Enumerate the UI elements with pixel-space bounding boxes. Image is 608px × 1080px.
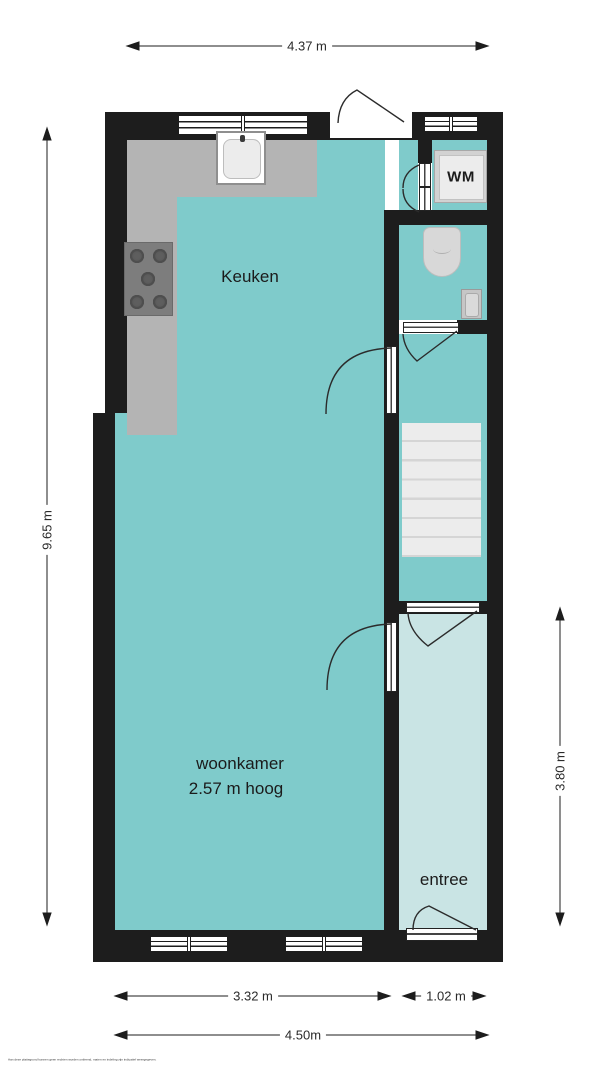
toilet bbox=[423, 227, 461, 277]
wall-right bbox=[487, 112, 503, 962]
stove-burner bbox=[153, 249, 167, 263]
toilet-seat-line bbox=[433, 244, 451, 254]
kitchen-sink bbox=[216, 131, 266, 185]
room-label-ceiling-height: 2.57 m hoog bbox=[189, 779, 284, 799]
toilet-hand-basin-bowl bbox=[465, 293, 479, 317]
door-living-entree bbox=[386, 622, 397, 692]
wall-toilet-bottom bbox=[457, 320, 487, 334]
staircase bbox=[402, 423, 481, 557]
stove-burner bbox=[153, 295, 167, 309]
dimension-width-living: 3.32 m bbox=[228, 989, 278, 1004]
room-label-keuken: Keuken bbox=[221, 267, 279, 287]
stove-burner bbox=[130, 249, 144, 263]
wall-wm-closet-left-upper bbox=[418, 140, 432, 163]
appliance-label-wm: WM bbox=[447, 169, 475, 186]
wall-interior-vertical bbox=[384, 210, 399, 930]
door-wm-panel-upper bbox=[419, 163, 431, 187]
room-wm-front-strip bbox=[399, 140, 418, 210]
window-mullion bbox=[322, 937, 326, 951]
dimension-height-left: 9.65 m bbox=[40, 505, 55, 555]
stove-burner bbox=[130, 295, 144, 309]
window-bottom-right bbox=[285, 936, 363, 952]
window-mullion bbox=[187, 937, 191, 951]
door-toilet bbox=[403, 322, 459, 333]
kitchen-sink-tap bbox=[240, 135, 245, 142]
floorplan-canvas: Keuken woonkamer 2.57 m hoog entree WM 4… bbox=[0, 0, 608, 1080]
dimension-width-entree: 1.02 m bbox=[421, 989, 471, 1004]
dimension-height-entree: 3.80 m bbox=[553, 746, 568, 796]
dimension-width-total: 4.50m bbox=[280, 1028, 326, 1043]
window-mullion bbox=[449, 117, 453, 131]
door-entree-front bbox=[406, 928, 478, 941]
window-top-wm bbox=[424, 116, 478, 132]
dimension-width-top: 4.37 m bbox=[282, 39, 332, 54]
wall-under-wm-closet bbox=[399, 210, 487, 225]
opening-top-door bbox=[330, 112, 412, 138]
kitchen-sink-basin bbox=[223, 139, 261, 179]
door-wm-panel-lower bbox=[419, 187, 431, 211]
disclaimer-text: Aan deze plattegrond kunnen geen rechten… bbox=[8, 1058, 156, 1062]
window-bottom-left bbox=[150, 936, 228, 952]
room-label-entree: entree bbox=[420, 870, 468, 890]
stove bbox=[124, 242, 173, 316]
room-kitchen-living-lower bbox=[115, 413, 385, 930]
door-entree-top bbox=[406, 602, 480, 613]
room-label-woonkamer: woonkamer bbox=[196, 754, 284, 774]
wall-left-lower bbox=[93, 413, 115, 962]
toilet-hand-basin bbox=[461, 289, 482, 319]
door-hall-living bbox=[386, 346, 397, 414]
stove-burner bbox=[141, 272, 155, 286]
